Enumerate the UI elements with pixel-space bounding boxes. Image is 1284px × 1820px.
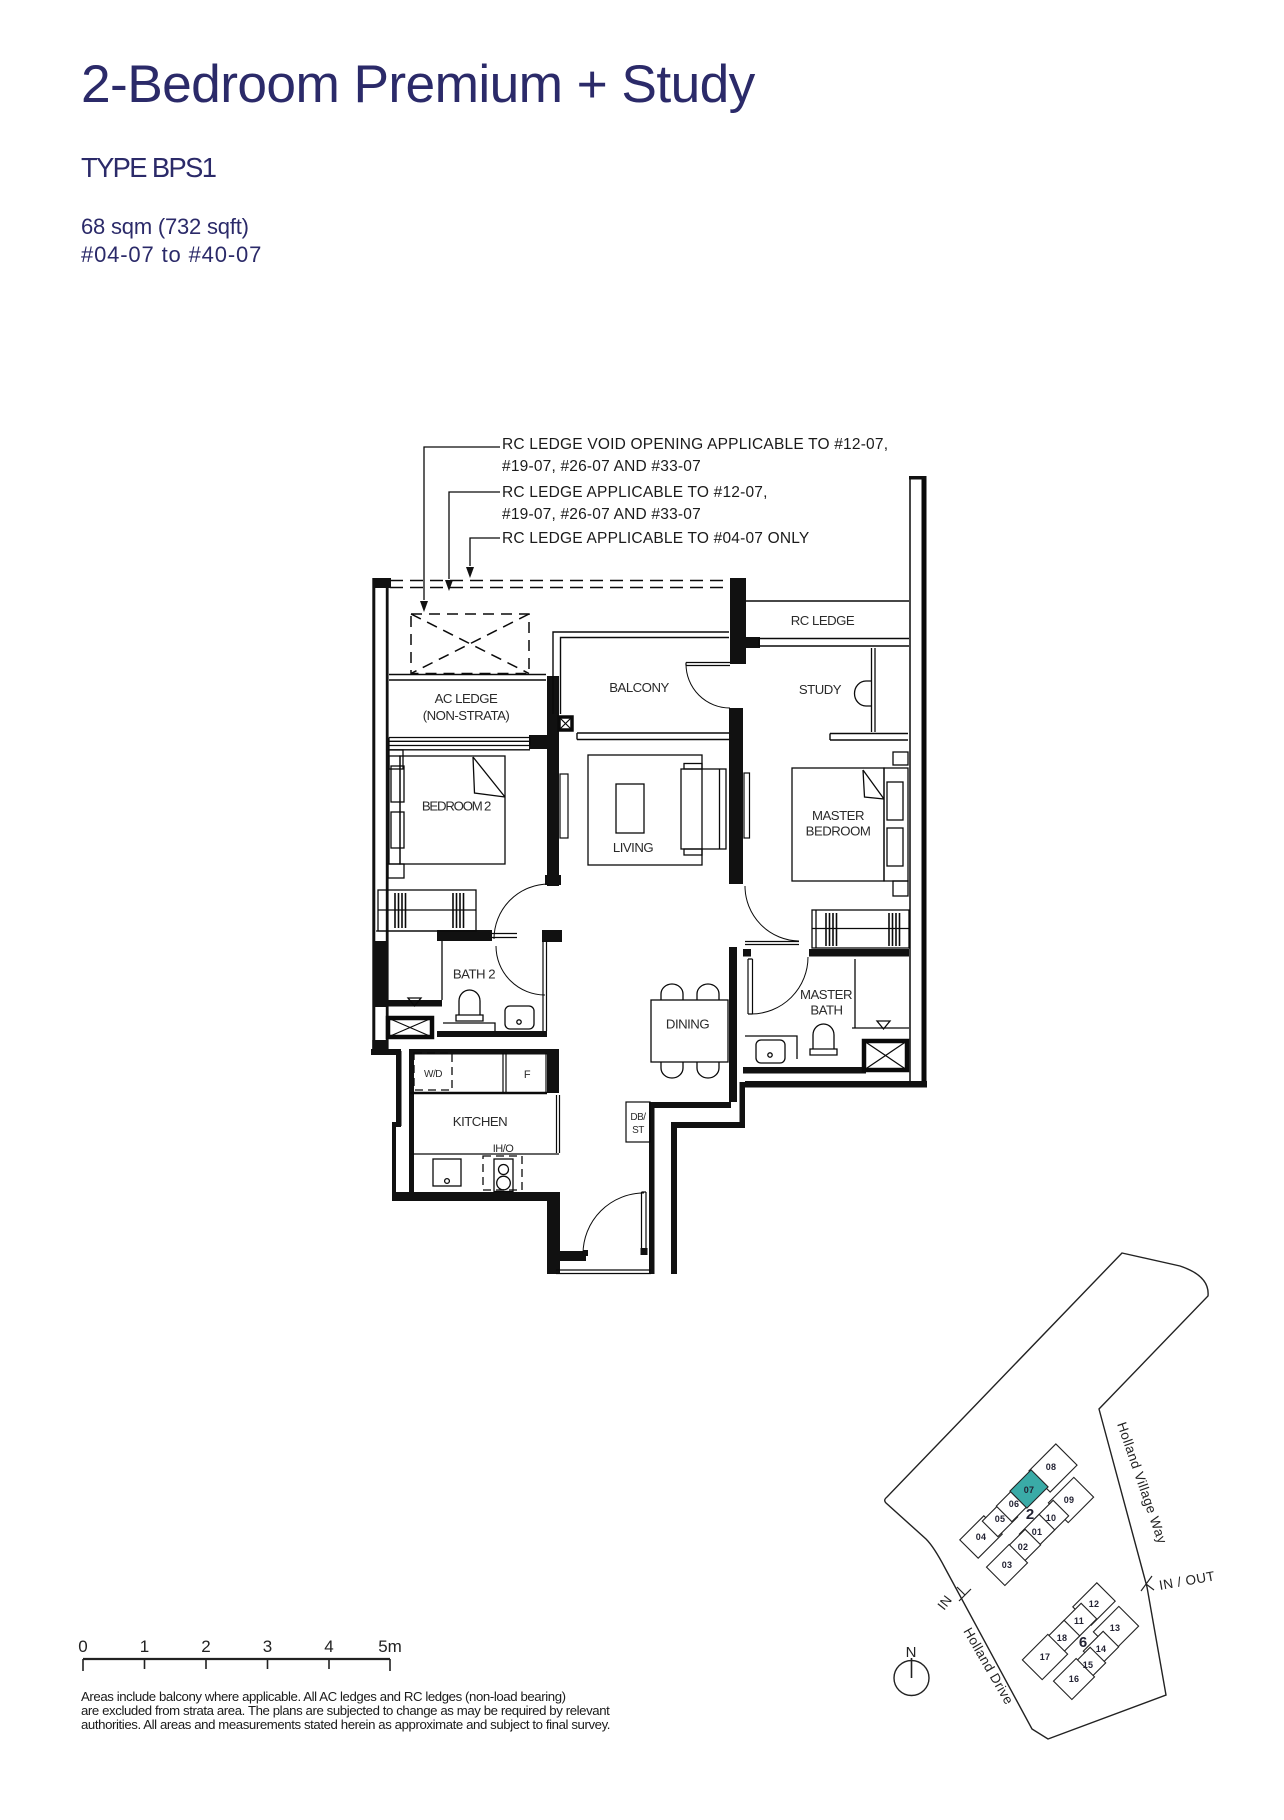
svg-text:LIVING: LIVING xyxy=(613,840,653,855)
svg-text:17: 17 xyxy=(1040,1652,1051,1662)
svg-text:1: 1 xyxy=(140,1637,149,1656)
svg-text:11: 11 xyxy=(1074,1616,1084,1626)
svg-text:are excluded from strata area.: are excluded from strata area. The plans… xyxy=(81,1703,610,1718)
svg-text:02: 02 xyxy=(1018,1542,1029,1552)
svg-text:#19-07, #26-07 AND #33-07: #19-07, #26-07 AND #33-07 xyxy=(502,506,701,523)
svg-text:6: 6 xyxy=(1079,1634,1087,1651)
svg-text:3: 3 xyxy=(263,1637,272,1656)
svg-text:BATH: BATH xyxy=(810,1003,842,1018)
svg-text:03: 03 xyxy=(1002,1560,1013,1570)
svg-text:RC LEDGE APPLICABLE TO #12-07,: RC LEDGE APPLICABLE TO #12-07, xyxy=(502,484,768,501)
svg-text:Holland Village Way: Holland Village Way xyxy=(1114,1420,1170,1546)
svg-text:01: 01 xyxy=(1032,1527,1043,1537)
svg-text:N: N xyxy=(906,1644,917,1661)
svg-text:0: 0 xyxy=(78,1637,87,1656)
svg-text:07: 07 xyxy=(1024,1485,1035,1495)
svg-text:BATH 2: BATH 2 xyxy=(453,967,495,982)
svg-text:#19-07, #26-07 AND #33-07: #19-07, #26-07 AND #33-07 xyxy=(502,458,701,475)
svg-text:IH/O: IH/O xyxy=(493,1143,515,1155)
svg-text:BEDROOM 2: BEDROOM 2 xyxy=(422,799,491,814)
svg-text:MASTER: MASTER xyxy=(812,808,864,823)
svg-text:06: 06 xyxy=(1009,1499,1020,1509)
svg-text:2: 2 xyxy=(201,1637,210,1656)
svg-text:04: 04 xyxy=(976,1532,987,1542)
svg-text:AC LEDGE: AC LEDGE xyxy=(435,691,498,706)
svg-text:12: 12 xyxy=(1089,1599,1100,1609)
svg-text:DINING: DINING xyxy=(666,1017,709,1032)
svg-text:4: 4 xyxy=(324,1637,333,1656)
svg-text:RC LEDGE APPLICABLE TO #04-07: RC LEDGE APPLICABLE TO #04-07 ONLY xyxy=(502,530,809,547)
svg-text:15: 15 xyxy=(1083,1660,1094,1670)
svg-text:ST: ST xyxy=(632,1125,644,1136)
svg-text:BEDROOM: BEDROOM xyxy=(806,824,871,839)
svg-text:DB/: DB/ xyxy=(630,1112,646,1123)
svg-text:IN / OUT: IN / OUT xyxy=(1158,1568,1216,1593)
svg-text:Areas include balcony where ap: Areas include balcony where applicable. … xyxy=(81,1689,566,1704)
svg-text:5m: 5m xyxy=(378,1637,402,1656)
svg-text:IN: IN xyxy=(935,1592,956,1613)
svg-text:16: 16 xyxy=(1069,1674,1080,1684)
svg-text:Holland Drive: Holland Drive xyxy=(960,1625,1016,1707)
svg-text:05: 05 xyxy=(995,1514,1006,1524)
svg-text:18: 18 xyxy=(1057,1633,1068,1643)
svg-text:13: 13 xyxy=(1110,1623,1121,1633)
svg-text:STUDY: STUDY xyxy=(799,682,842,697)
svg-text:09: 09 xyxy=(1064,1495,1075,1505)
svg-text:RC LEDGE: RC LEDGE xyxy=(791,613,855,628)
svg-text:RC LEDGE VOID OPENING APPLICAB: RC LEDGE VOID OPENING APPLICABLE TO #12-… xyxy=(502,436,888,453)
svg-text:authorities. All areas and mea: authorities. All areas and measurements … xyxy=(81,1717,610,1732)
svg-text:10: 10 xyxy=(1046,1513,1057,1523)
svg-text:F: F xyxy=(524,1069,531,1081)
svg-text:14: 14 xyxy=(1096,1644,1107,1654)
svg-text:W/D: W/D xyxy=(424,1069,442,1080)
svg-text:08: 08 xyxy=(1046,1462,1057,1472)
svg-text:2: 2 xyxy=(1026,1506,1034,1523)
svg-text:BALCONY: BALCONY xyxy=(609,680,669,695)
svg-text:MASTER: MASTER xyxy=(800,987,852,1002)
svg-text:KITCHEN: KITCHEN xyxy=(453,1114,507,1129)
svg-text:(NON-STRATA): (NON-STRATA) xyxy=(423,708,510,723)
